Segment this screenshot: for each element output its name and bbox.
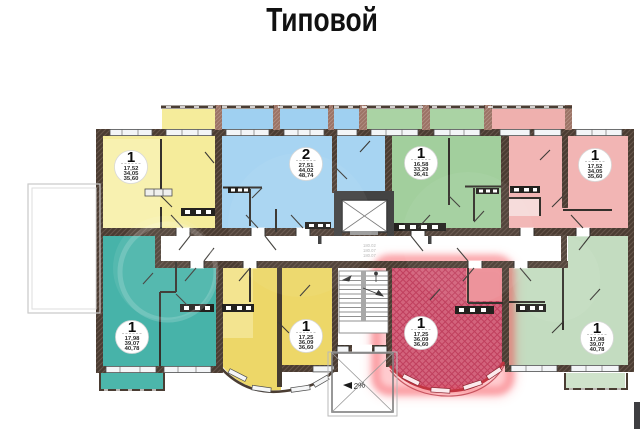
svg-text:36,60: 36,60 (414, 342, 429, 348)
svg-text:36,41: 36,41 (414, 172, 429, 178)
svg-text:40,78: 40,78 (125, 346, 140, 352)
svg-text:48,74: 48,74 (299, 173, 314, 179)
svg-text:2%: 2% (352, 380, 366, 391)
svg-text:35,60: 35,60 (124, 176, 139, 182)
svg-text:Типовой: Типовой (266, 2, 378, 38)
svg-text:36,60: 36,60 (299, 345, 314, 351)
svg-text:35,60: 35,60 (588, 174, 603, 180)
svg-text:40,78: 40,78 (590, 347, 605, 353)
